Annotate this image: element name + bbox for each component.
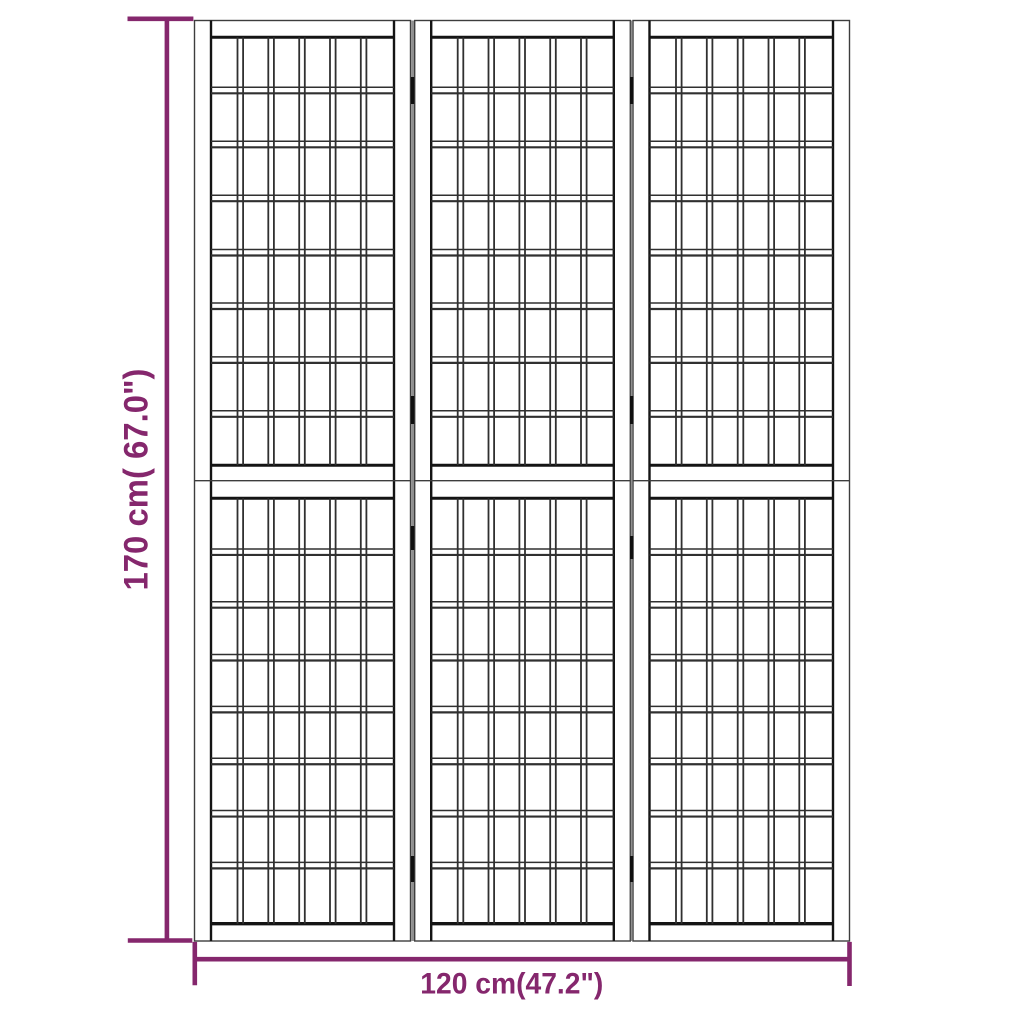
svg-text:120 cm(47.2"): 120 cm(47.2"): [420, 968, 603, 1001]
svg-text:170 cm( 67.0"): 170 cm( 67.0"): [118, 369, 156, 591]
